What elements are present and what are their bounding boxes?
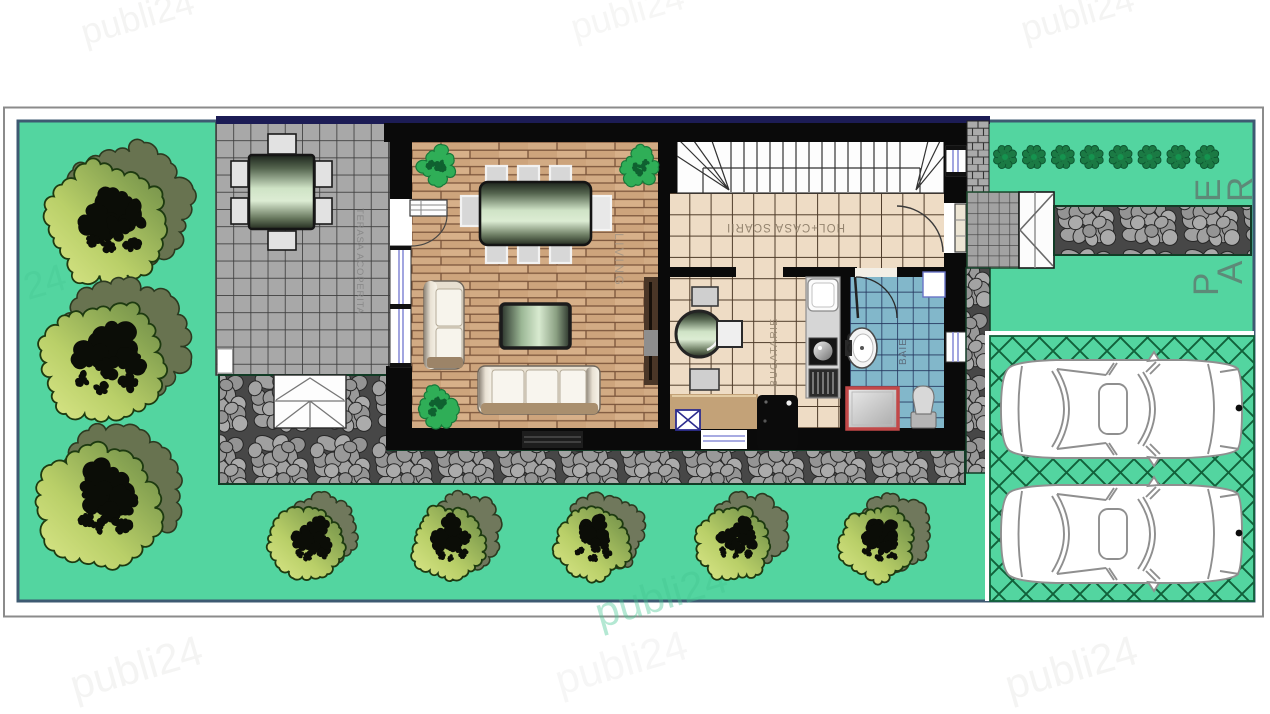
svg-text:BAIE: BAIE (898, 338, 909, 365)
svg-text:BUCATARIE: BUCATARIE (768, 318, 780, 387)
svg-text:A: A (1211, 260, 1250, 284)
svg-text:R: R (1221, 177, 1260, 202)
svg-text:HOL+CASA SCARII: HOL+CASA SCARII (726, 221, 845, 233)
svg-text:LIVING: LIVING (612, 233, 626, 287)
svg-text:TERASA ACOPERITA: TERASA ACOPERITA (354, 208, 365, 315)
